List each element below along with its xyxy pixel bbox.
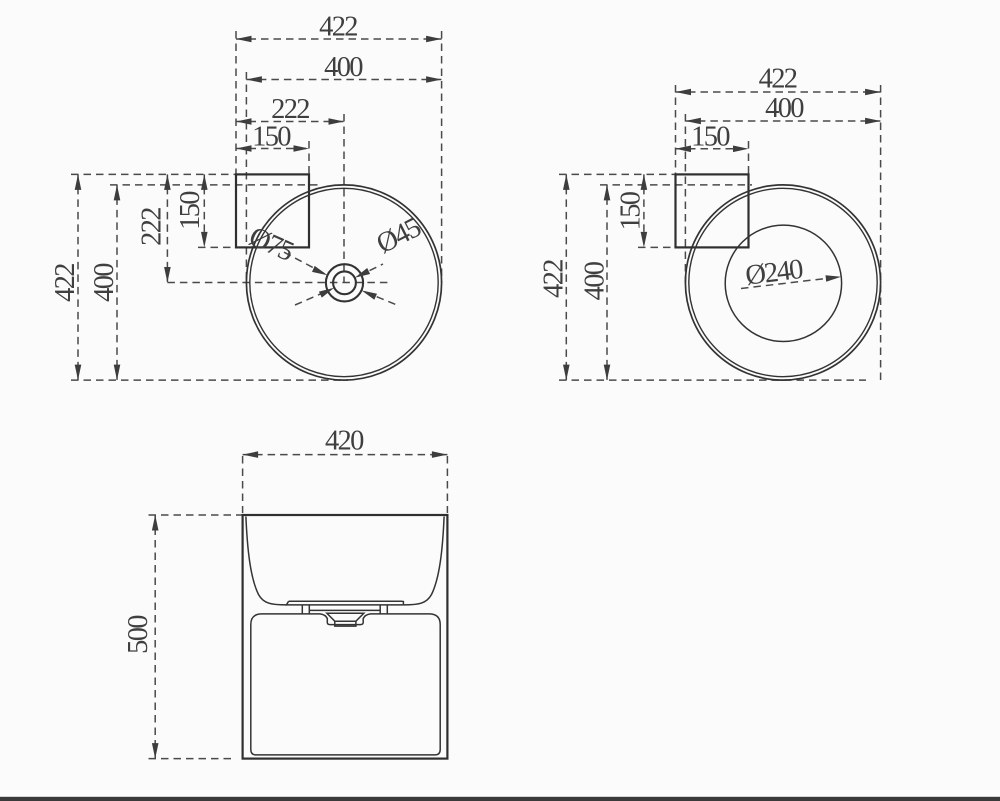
svg-text:Ø240: Ø240 [744, 254, 805, 292]
svg-text:150: 150 [615, 191, 646, 230]
svg-text:422: 422 [319, 11, 357, 42]
svg-text:400: 400 [89, 263, 120, 302]
svg-text:400: 400 [579, 261, 610, 300]
svg-text:500: 500 [123, 615, 154, 654]
svg-text:422: 422 [538, 260, 569, 298]
svg-text:420: 420 [325, 425, 364, 456]
svg-text:150: 150 [175, 191, 206, 230]
svg-text:400: 400 [324, 52, 363, 83]
svg-text:422: 422 [759, 63, 797, 94]
svg-text:222: 222 [271, 94, 309, 125]
svg-text:400: 400 [765, 93, 804, 124]
svg-text:422: 422 [50, 264, 81, 302]
svg-text:150: 150 [252, 121, 291, 152]
svg-text:150: 150 [691, 121, 730, 152]
svg-text:222: 222 [136, 208, 167, 246]
